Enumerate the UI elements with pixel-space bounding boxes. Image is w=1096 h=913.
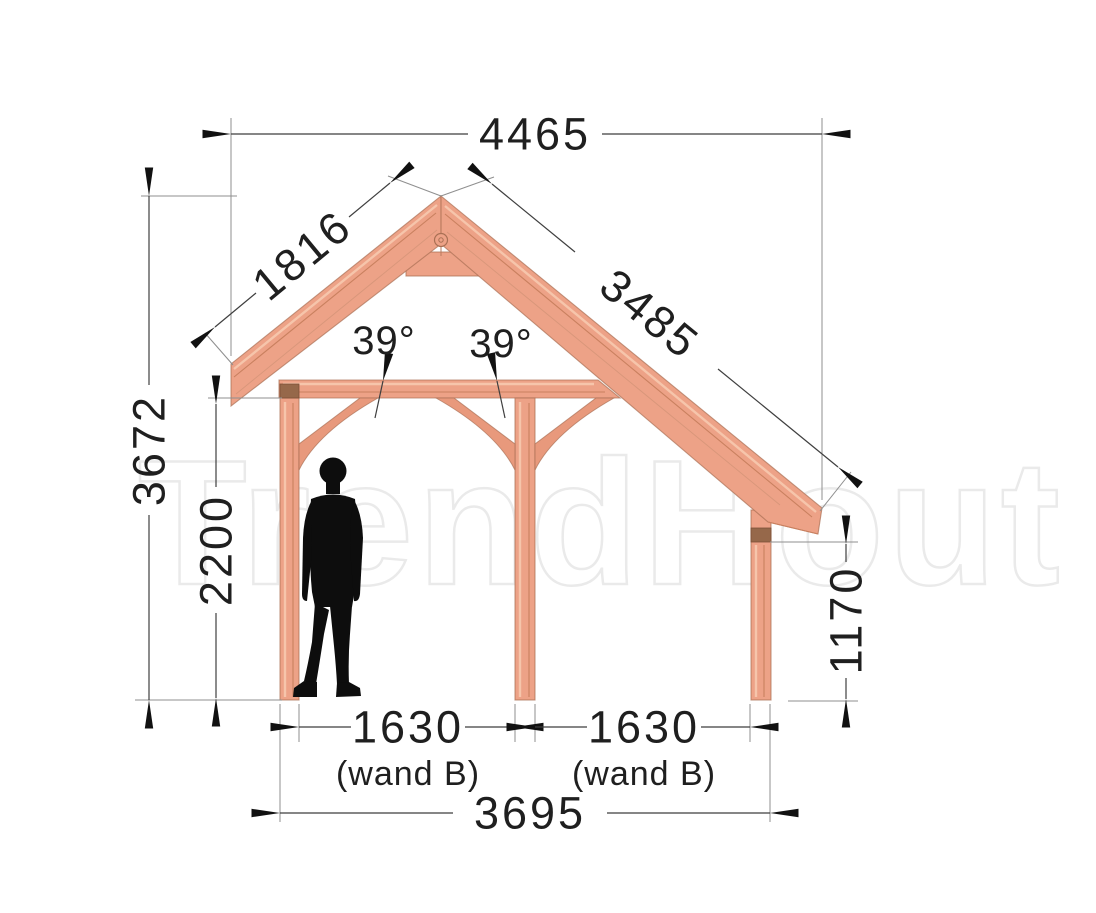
- dim-top-width-label: 4465: [479, 109, 591, 160]
- dim-total-height: 3672: [124, 196, 175, 700]
- dim-bay-right: 1630 (wand B): [535, 702, 750, 794]
- dim-bay-left-label: 1630: [352, 702, 464, 753]
- tie-beam: [279, 380, 620, 398]
- middle-post-brace-right: [535, 398, 614, 470]
- dim-left-rafter: 1816: [215, 183, 390, 327]
- dim-clearance-height-label: 2200: [191, 494, 242, 606]
- dim-bay-left-note: (wand B): [336, 755, 480, 793]
- dim-base-width-label: 3695: [474, 788, 586, 839]
- drawing-svg: 4465 1816 3485 3672: [0, 0, 1096, 913]
- angle-left-label: 39°: [352, 319, 416, 363]
- person-silhouette: [293, 458, 363, 698]
- right-post-band: [751, 528, 771, 542]
- dim-total-height-label: 3672: [124, 394, 175, 506]
- dim-top-width: 4465: [231, 109, 822, 160]
- dim-right-post-height: 1170: [821, 544, 872, 699]
- dim-bay-left: 1630 (wand B): [299, 702, 515, 794]
- left-post: [280, 398, 299, 700]
- dim-bay-right-label: 1630: [588, 702, 700, 753]
- left-post-band: [280, 384, 299, 398]
- middle-post: [515, 398, 535, 700]
- dim-right-post-height-label: 1170: [821, 566, 872, 675]
- dim-clearance-height: 2200: [191, 404, 242, 698]
- dim-bay-right-note: (wand B): [572, 755, 716, 793]
- elevation-drawing: TrendHout: [0, 0, 1096, 913]
- angle-right-label: 39°: [469, 322, 533, 366]
- dim-base-width: 3695: [280, 788, 770, 839]
- apex-peg: [435, 234, 448, 247]
